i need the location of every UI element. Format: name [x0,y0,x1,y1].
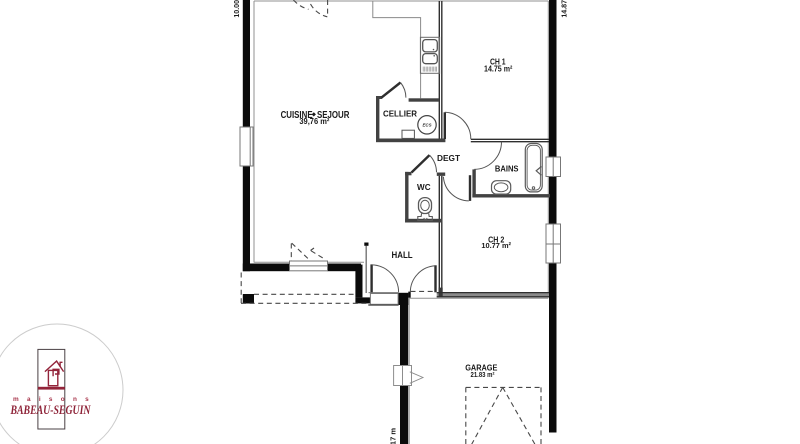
svg-text:WC: WC [417,182,431,192]
svg-text:14.75 m²: 14.75 m² [484,64,513,73]
svg-text:DEGT: DEGT [437,153,461,163]
svg-text:CELLIER: CELLIER [383,108,417,118]
svg-text:10.77 m²: 10.77 m² [481,241,511,250]
svg-text:10.00: 10.00 [232,0,241,18]
svg-text:BABEAU-SEGUIN: BABEAU-SEGUIN [10,403,91,417]
svg-text:21.83 m²: 21.83 m² [471,370,495,379]
svg-text:ECS: ECS [422,123,431,128]
svg-text:BAINS: BAINS [495,164,519,174]
svg-text:14.87: 14.87 [559,0,568,18]
svg-text:10.17 m: 10.17 m [389,428,398,444]
svg-text:39,76 m²: 39,76 m² [299,117,329,126]
svg-text:HALL: HALL [392,250,414,260]
